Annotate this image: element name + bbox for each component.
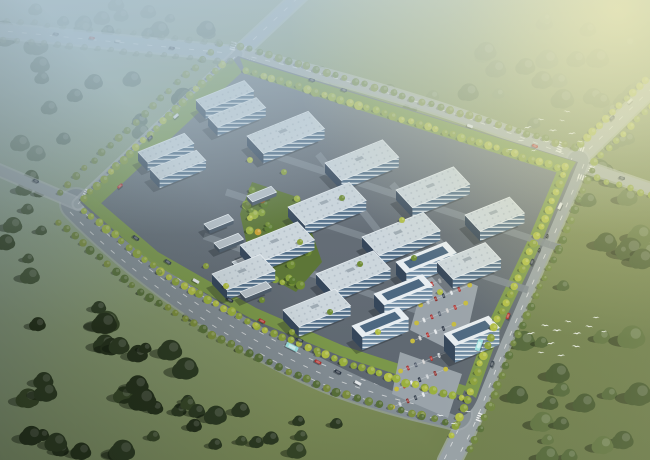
atmosphere bbox=[0, 0, 650, 460]
rendering-canvas bbox=[0, 0, 650, 460]
aerial-site-rendering bbox=[0, 0, 650, 460]
fog-overlay bbox=[0, 0, 650, 460]
